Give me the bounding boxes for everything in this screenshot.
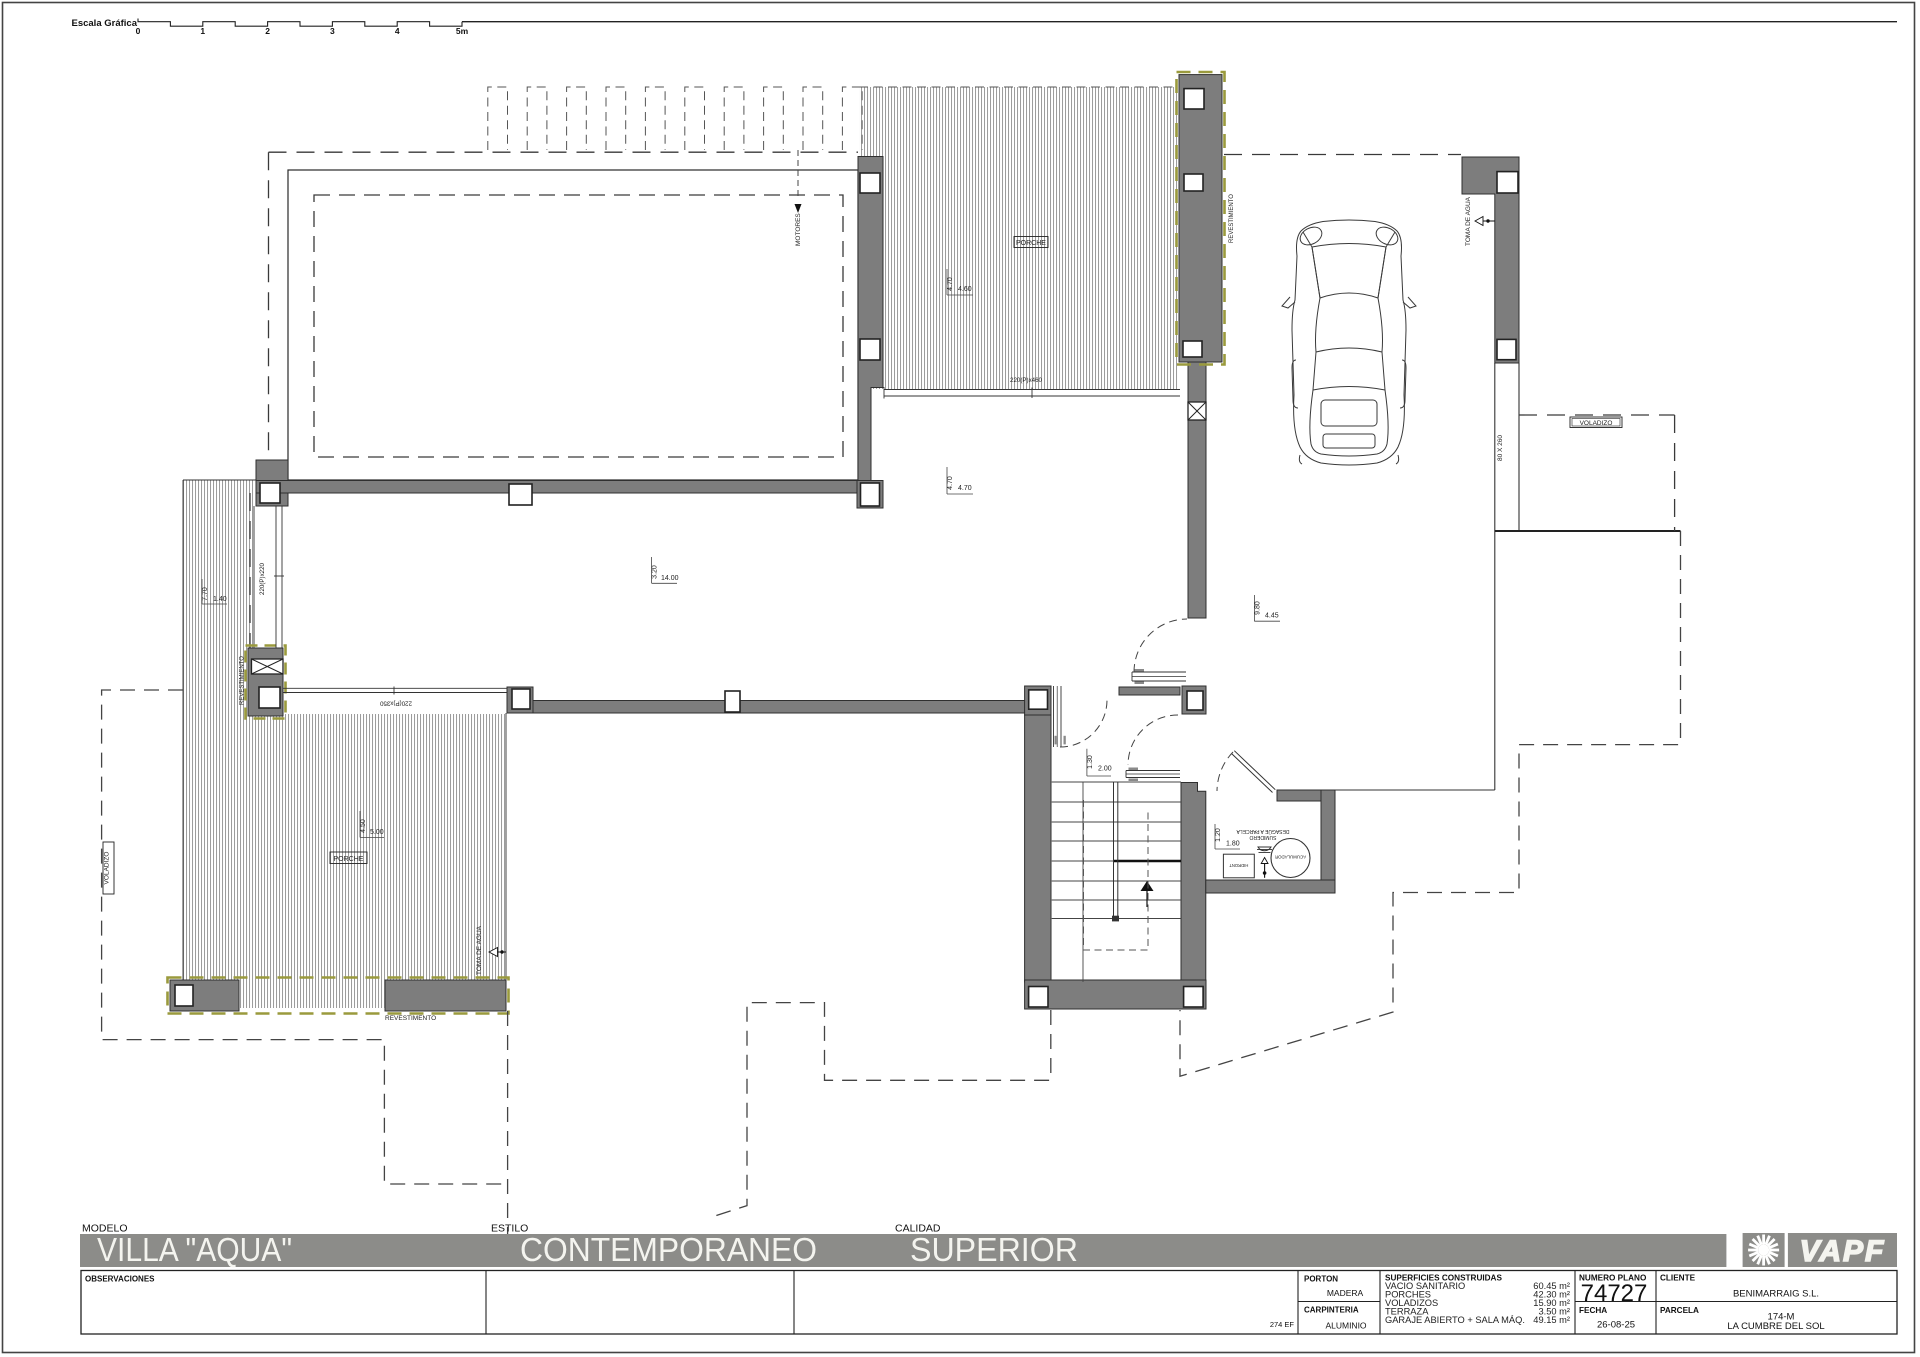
svg-text:LA CUMBRE DEL SOL: LA CUMBRE DEL SOL — [1727, 1321, 1824, 1332]
svg-text:REVESTIMENTO: REVESTIMENTO — [385, 1015, 436, 1022]
svg-text:VILLA "AQUA": VILLA "AQUA" — [97, 1231, 292, 1268]
svg-text:ACUMULADOR: ACUMULADOR — [1275, 855, 1306, 860]
svg-text:7.70: 7.70 — [202, 587, 209, 601]
svg-text:OBSERVACIONES: OBSERVACIONES — [85, 1275, 155, 1284]
svg-text:3.20: 3.20 — [652, 565, 659, 579]
svg-text:CARPINTERIA: CARPINTERIA — [1304, 1306, 1359, 1315]
svg-text:4.60: 4.60 — [958, 286, 972, 293]
svg-text:FECHA: FECHA — [1579, 1306, 1607, 1315]
svg-text:MADERA: MADERA — [1327, 1288, 1364, 1298]
svg-text:4.70: 4.70 — [947, 277, 954, 291]
svg-text:80 X 260: 80 X 260 — [1497, 435, 1504, 461]
svg-text:4.70: 4.70 — [958, 485, 972, 492]
svg-text:CLIENTE: CLIENTE — [1660, 1274, 1696, 1283]
svg-text:1.20: 1.20 — [1215, 828, 1222, 842]
svg-text:BENIMARRAIG S.L.: BENIMARRAIG S.L. — [1733, 1289, 1819, 1300]
svg-text:VAPF: VAPF — [1800, 1235, 1886, 1268]
svg-text:GARAJE ABIERTO + SALA MÁQ.: GARAJE ABIERTO + SALA MÁQ. — [1385, 1315, 1525, 1325]
svg-text:9.80: 9.80 — [1255, 601, 1262, 615]
svg-text:4.70: 4.70 — [947, 476, 954, 490]
svg-text:14.00: 14.00 — [661, 575, 679, 582]
svg-text:5.00: 5.00 — [370, 829, 384, 836]
svg-text:PORCHE: PORCHE — [1016, 240, 1046, 247]
svg-text:SUPERIOR: SUPERIOR — [910, 1231, 1078, 1268]
svg-text:2.00: 2.00 — [1098, 766, 1112, 773]
svg-text:Escala Gráfica: Escala Gráfica — [72, 18, 138, 29]
svg-text:220(P)x460: 220(P)x460 — [1010, 377, 1043, 384]
svg-text:ALUMINIO: ALUMINIO — [1325, 1321, 1366, 1331]
svg-text:REVESTIMIENTO: REVESTIMIENTO — [1229, 194, 1235, 243]
svg-text:PORCHE: PORCHE — [334, 856, 364, 863]
svg-text:TOMA DE AGUA: TOMA DE AGUA — [1465, 196, 1472, 246]
svg-text:4: 4 — [395, 26, 400, 36]
svg-text:TOMA DE AGUA: TOMA DE AGUA — [476, 925, 483, 975]
svg-text:REVESTIMIENTO: REVESTIMIENTO — [240, 656, 246, 705]
svg-text:49.15 m²: 49.15 m² — [1533, 1315, 1570, 1325]
svg-text:1.40: 1.40 — [213, 596, 227, 603]
svg-text:220(P)x220: 220(P)x220 — [259, 562, 266, 595]
svg-text:274 EF: 274 EF — [1270, 1320, 1295, 1329]
svg-text:1: 1 — [200, 26, 205, 36]
svg-text:DESAGÜE A PARCELA: DESAGÜE A PARCELA — [1236, 828, 1290, 835]
svg-text:0: 0 — [136, 26, 141, 36]
svg-text:PORTON: PORTON — [1304, 1275, 1338, 1284]
svg-text:VOLADIZO: VOLADIZO — [1580, 420, 1613, 427]
svg-text:4.45: 4.45 — [1265, 613, 1279, 620]
svg-text:PARCELA: PARCELA — [1660, 1306, 1699, 1315]
svg-text:CONTEMPORANEO: CONTEMPORANEO — [520, 1231, 817, 1268]
svg-text:5m: 5m — [456, 26, 469, 36]
svg-text:74727: 74727 — [1581, 1280, 1648, 1307]
svg-text:MOTORES: MOTORES — [795, 213, 802, 246]
svg-text:26-08-25: 26-08-25 — [1597, 1320, 1635, 1331]
svg-text:220(P)x350: 220(P)x350 — [379, 700, 412, 707]
svg-text:4.50: 4.50 — [360, 819, 367, 833]
svg-text:1.80: 1.80 — [1226, 841, 1240, 848]
svg-text:1.30: 1.30 — [1087, 755, 1094, 769]
svg-text:2: 2 — [265, 26, 270, 36]
svg-text:3: 3 — [330, 26, 335, 36]
svg-text:VOLADIZO: VOLADIZO — [104, 852, 111, 885]
svg-text:HIDRONT: HIDRONT — [1229, 863, 1249, 868]
